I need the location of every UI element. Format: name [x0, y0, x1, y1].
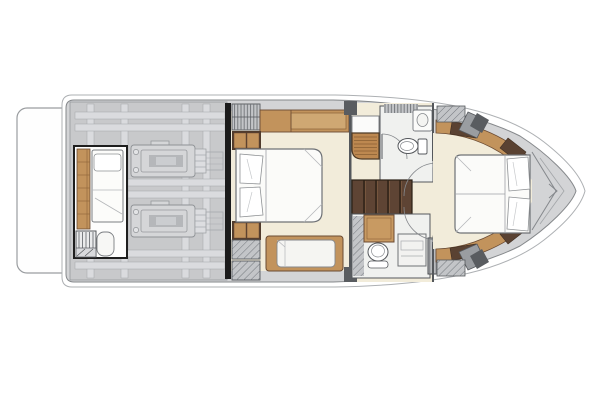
master-aft-wall: [349, 103, 352, 282]
master-storage-cubbies-top: [232, 131, 261, 150]
crew-cabin: [74, 146, 127, 258]
floor-plan-canvas: [0, 0, 600, 400]
forward-head-vanity: [398, 234, 426, 266]
crew-wardrobe: [77, 149, 90, 229]
master-shower: [352, 133, 379, 159]
companionway-stairs: [352, 180, 412, 214]
main-bulkhead: [225, 103, 231, 279]
master-pillow-bottom: [240, 187, 263, 217]
master-head-sink: [417, 114, 428, 127]
crew-berth-pillow: [94, 154, 121, 171]
master-storage-cubbies-bottom: [232, 221, 261, 240]
master-louvre-locker: [232, 104, 260, 130]
yacht-floor-plan: [0, 0, 600, 400]
master-cabin: [231, 103, 352, 280]
master-head: [380, 104, 433, 182]
master-wardrobe: [260, 110, 349, 132]
master-pillow-top: [240, 154, 263, 184]
crew-ladder: [76, 231, 96, 257]
vip-berth: [455, 155, 530, 233]
crew-seat: [97, 232, 114, 256]
vip-pillow-bottom: [507, 197, 530, 231]
master-sofa: [266, 236, 343, 271]
master-toilet: [398, 139, 418, 154]
forward-shower: [364, 215, 394, 242]
engine-room: [70, 102, 227, 280]
master-vanity: [352, 116, 379, 133]
vip-pillow-top: [507, 157, 530, 191]
forward-toilet: [368, 243, 388, 261]
master-berth: [236, 149, 322, 222]
